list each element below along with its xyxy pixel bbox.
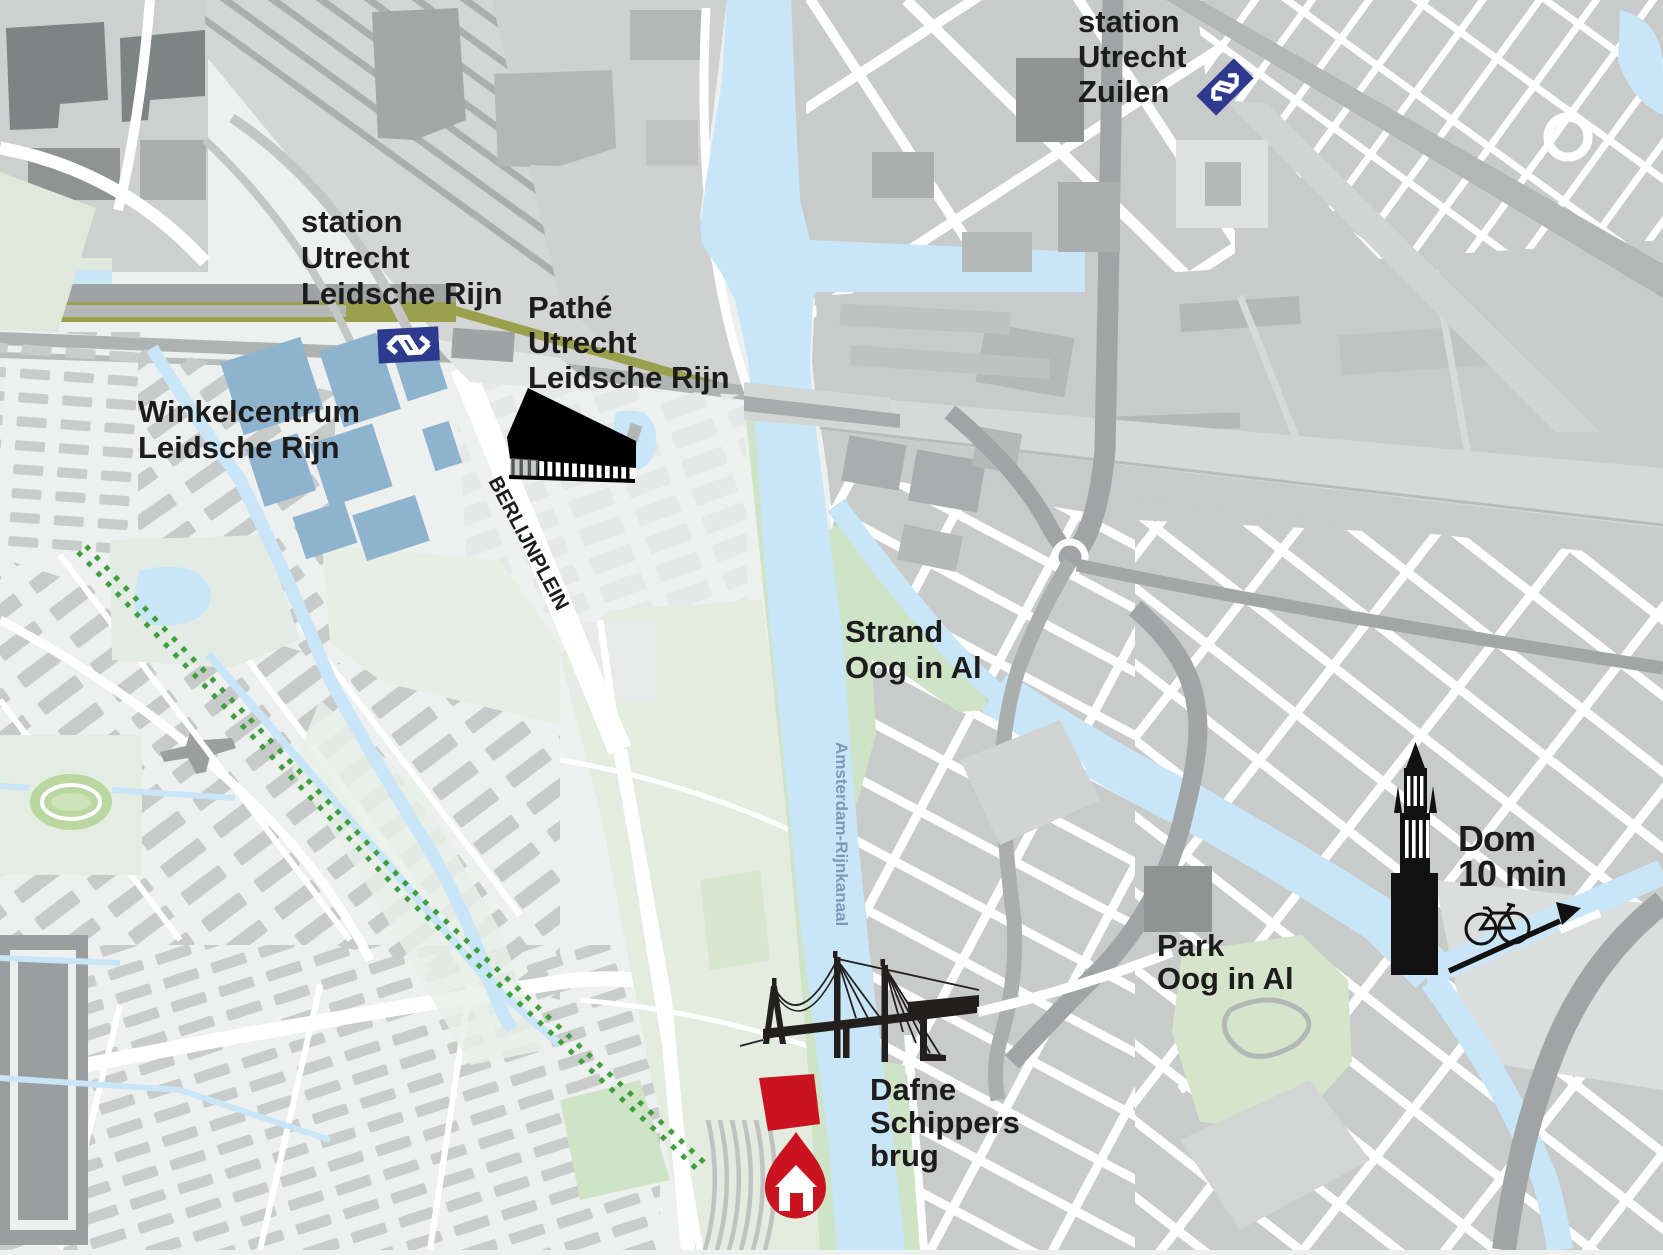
- svg-text:Amsterdam-Rijnkanaal: Amsterdam-Rijnkanaal: [832, 742, 851, 926]
- svg-text:Leidsche Rijn: Leidsche Rijn: [528, 360, 730, 395]
- svg-text:Utrecht: Utrecht: [528, 325, 637, 360]
- svg-text:brug: brug: [870, 1138, 939, 1173]
- svg-text:Zuilen: Zuilen: [1078, 74, 1169, 109]
- svg-text:Utrecht: Utrecht: [1078, 39, 1187, 74]
- svg-text:Utrecht: Utrecht: [301, 240, 410, 275]
- svg-text:10 min: 10 min: [1458, 853, 1566, 894]
- svg-text:Winkelcentrum: Winkelcentrum: [138, 394, 360, 429]
- svg-text:Pathé: Pathé: [528, 290, 612, 325]
- svg-text:Strand: Strand: [845, 614, 943, 649]
- svg-text:Dafne: Dafne: [870, 1072, 956, 1107]
- svg-text:Leidsche Rijn: Leidsche Rijn: [301, 276, 503, 311]
- svg-text:Park: Park: [1157, 928, 1225, 963]
- svg-text:Oog in Al: Oog in Al: [1157, 961, 1294, 996]
- svg-text:Oog in Al: Oog in Al: [845, 650, 982, 685]
- svg-text:Schippers: Schippers: [870, 1105, 1020, 1140]
- svg-text:station: station: [1078, 4, 1180, 39]
- svg-text:Leidsche Rijn: Leidsche Rijn: [138, 430, 340, 465]
- svg-text:station: station: [301, 204, 403, 239]
